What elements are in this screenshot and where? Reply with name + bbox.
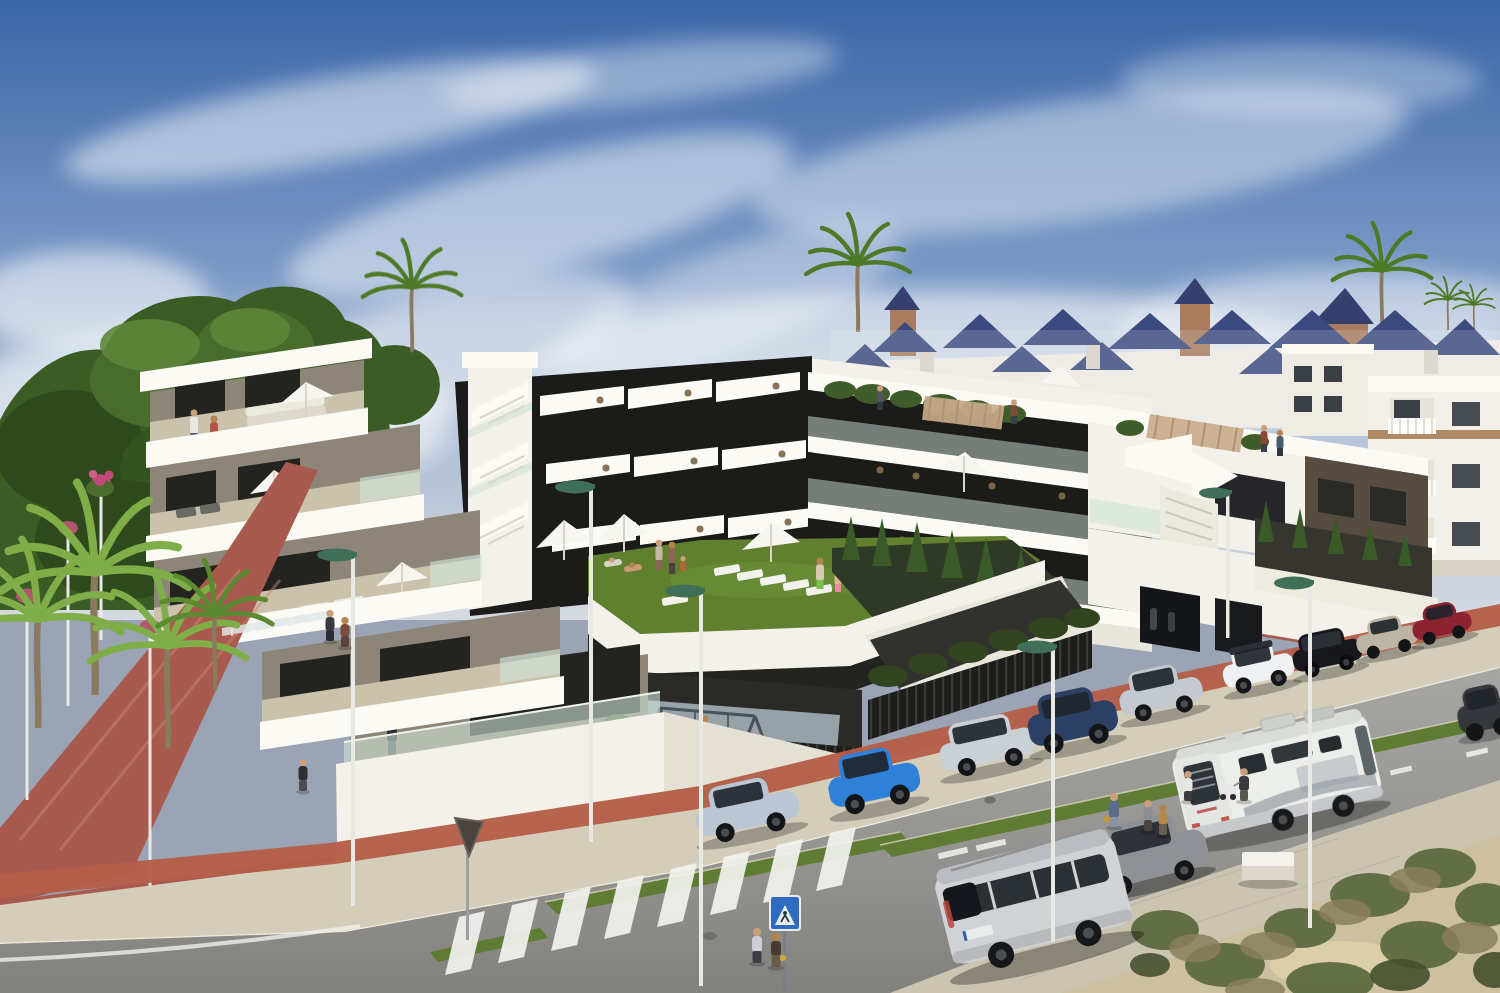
- pink-flower-bush: [86, 470, 114, 497]
- architectural-render: [0, 0, 1500, 993]
- render-canvas: [0, 0, 1500, 993]
- bench: [1238, 852, 1298, 889]
